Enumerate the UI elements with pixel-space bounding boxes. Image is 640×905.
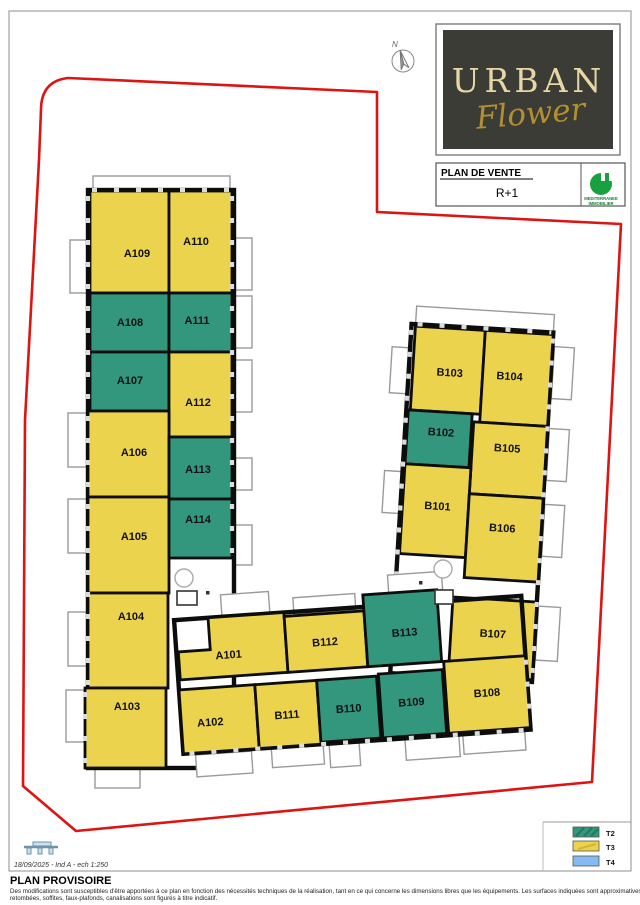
room-A109 [90,191,169,293]
floorplan-canvas: N URBAN Flower PLAN DE VENTE R+1 MEDITER… [0,0,640,905]
balcony [542,504,565,557]
legend: T2 T3 T4 [543,822,631,871]
elevator-left [177,591,197,605]
balcony [196,751,253,777]
room-label-B104: B104 [496,370,524,384]
room-label-A110: A110 [183,236,209,248]
stair-circle-icon [434,560,452,578]
room-label-B102: B102 [427,426,454,440]
legend-label-t4: T4 [606,858,616,867]
balcony [234,238,252,290]
logo-block: URBAN Flower [436,24,620,155]
room-label-A111: A111 [184,315,209,327]
room-label-A105: A105 [121,531,147,543]
balcony [234,360,252,412]
room-label-B110: B110 [335,702,361,716]
wing-bottom: A101B112B113A102B111B110B109B108 [172,566,532,778]
room-label-B109: B109 [398,696,425,710]
balcony [546,429,569,482]
balcony [68,612,88,666]
title-block: PLAN DE VENTE R+1 MEDITERRANEE IMMOBILIE… [436,163,625,206]
room-label-B111: B111 [274,709,300,723]
room-A104 [88,593,168,688]
room-A105 [88,497,169,593]
room-label-B103: B103 [436,367,463,381]
floor-label: R+1 [496,186,519,200]
room-label-A102: A102 [197,716,224,730]
room-label-A106: A106 [121,447,147,459]
balcony [535,606,560,661]
legend-row-t4: T4 [573,856,616,867]
room-A101 [176,612,288,679]
legend-label-t2: T2 [606,829,615,838]
balcony [68,413,88,467]
agency-name-line2: IMMOBILIER [588,201,613,206]
room-label-A104: A104 [118,611,145,623]
stair-circle-icon [175,569,193,587]
room-label-B108: B108 [473,687,500,701]
balcony [234,525,252,565]
legend-swatch-t4 [573,856,599,866]
room-label-A108: A108 [117,317,143,329]
footer-title: PLAN PROVISOIRE [10,875,111,887]
footer-disclaimer-2: retombées, soffites, faux-plafonds, cana… [10,895,218,902]
room-label-B107: B107 [479,628,506,642]
balcony [234,296,252,348]
legend-row-t2: T2 [573,827,615,838]
scale-bar-icon [24,842,58,854]
room-label-A109: A109 [124,248,150,260]
compass-needle-icon [396,49,409,69]
plan-page: N URBAN Flower PLAN DE VENTE R+1 MEDITER… [0,0,640,905]
door-dot [206,591,210,595]
elevator-right [435,590,453,604]
room-A112 [169,352,232,437]
footer-disclaimer-1: Des modifications sont susceptibles d'êt… [10,888,640,895]
room-label-A114: A114 [185,514,212,526]
room-label-A107: A107 [117,375,143,387]
balcony [234,458,252,490]
plan-de-vente-label: PLAN DE VENTE [441,168,521,179]
balcony [551,347,574,400]
room-A103 [85,688,166,768]
room-label-A113: A113 [185,464,211,476]
room-label-B105: B105 [494,442,521,456]
room-label-B112: B112 [312,636,338,650]
balcony [95,768,140,788]
north-label: N [392,40,398,49]
stairwell-left [175,569,210,605]
balcony [68,499,88,553]
room-label-B101: B101 [424,500,451,514]
room-B102 [405,410,472,468]
room-A114 [169,499,232,558]
scale-note: 18/09/2025 - Ind A - ech 1:250 [14,862,108,869]
door-dot [419,581,423,585]
room-B106 [464,494,543,582]
legend-label-t3: T3 [606,843,615,852]
north-compass: N [392,40,414,72]
legend-row-t3: T3 [573,841,615,852]
room-label-A101: A101 [215,649,242,663]
room-label-B106: B106 [489,522,516,536]
room-label-A112: A112 [185,397,211,409]
room-label-B113: B113 [391,626,417,640]
room-B105 [469,422,547,498]
room-label-A103: A103 [114,701,140,713]
